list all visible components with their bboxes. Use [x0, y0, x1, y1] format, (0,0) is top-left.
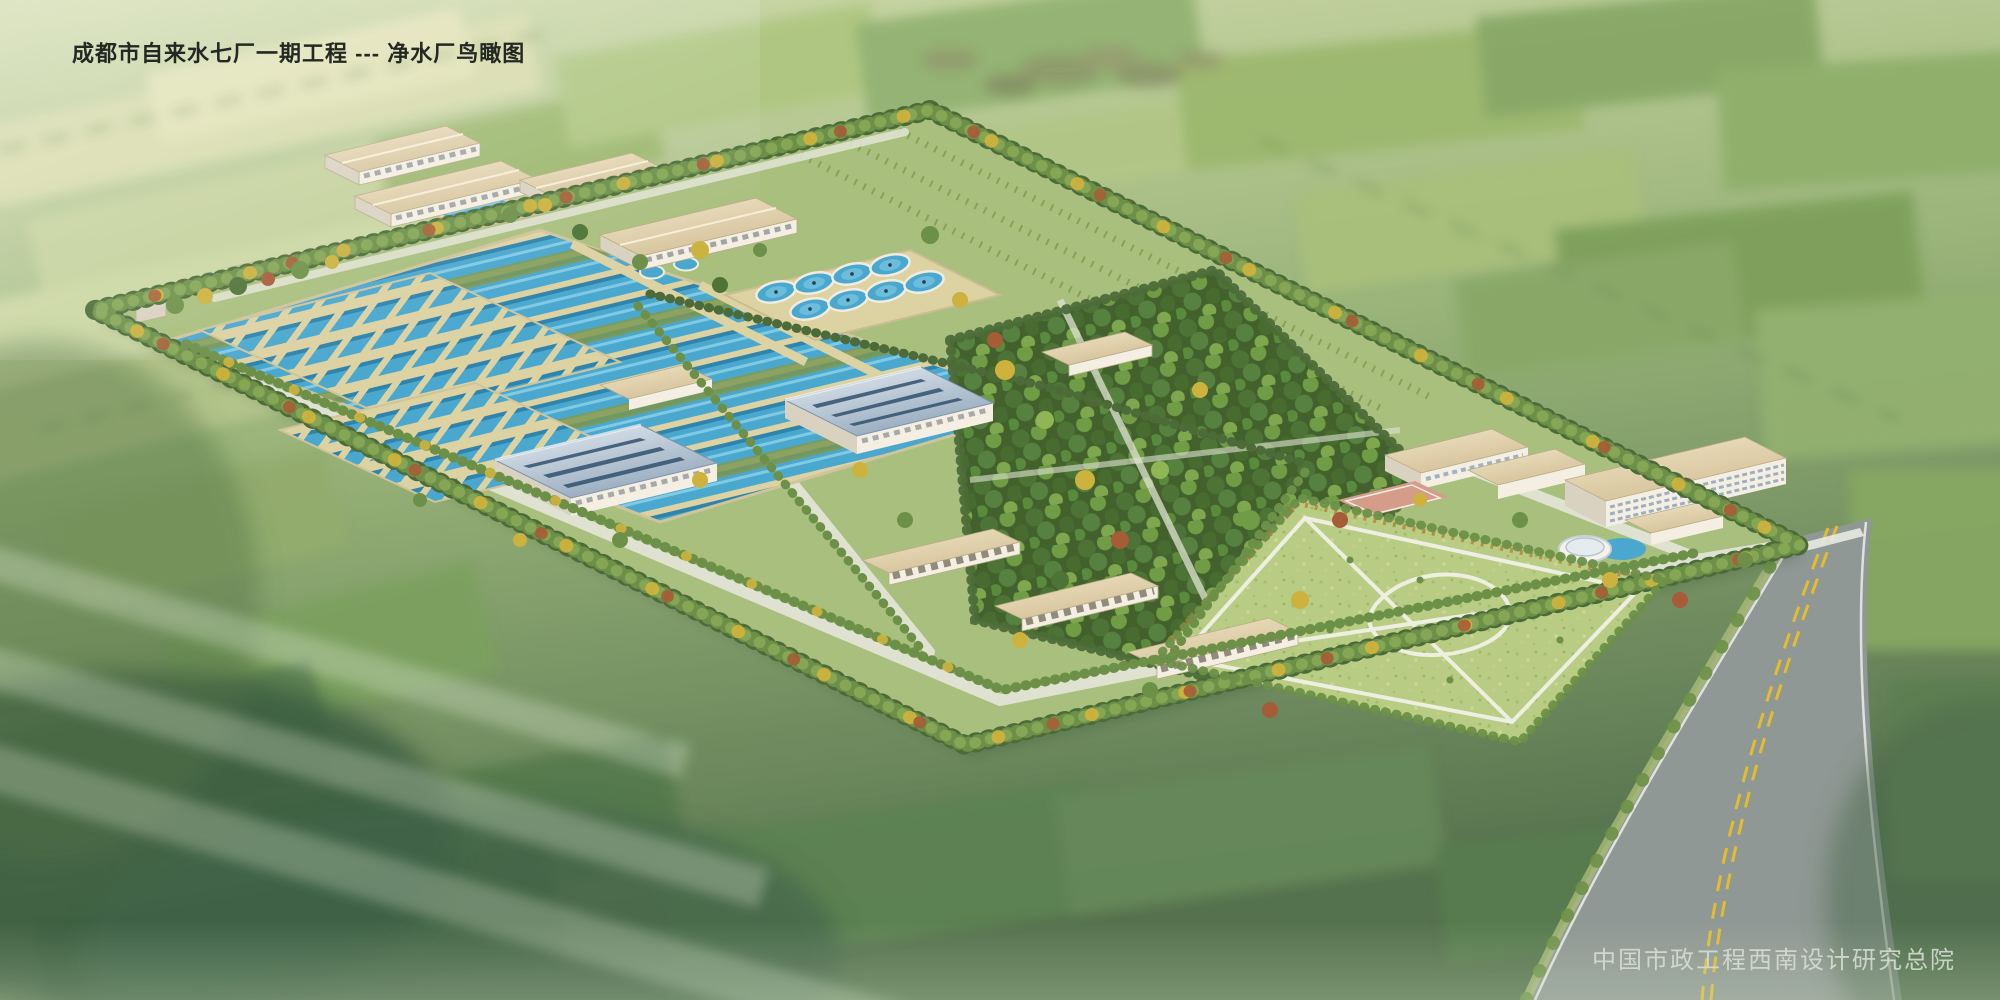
rendering-canvas [0, 0, 2000, 1000]
design-institute-credit: 中国市政工程西南设计研究总院 [1592, 940, 1956, 975]
birdseye-rendering: 成都市自来水七厂一期工程 --- 净水厂鸟瞰图 中国市政工程西南设计研究总院 [0, 0, 2000, 1000]
rendering-title: 成都市自来水七厂一期工程 --- 净水厂鸟瞰图 [72, 36, 525, 68]
